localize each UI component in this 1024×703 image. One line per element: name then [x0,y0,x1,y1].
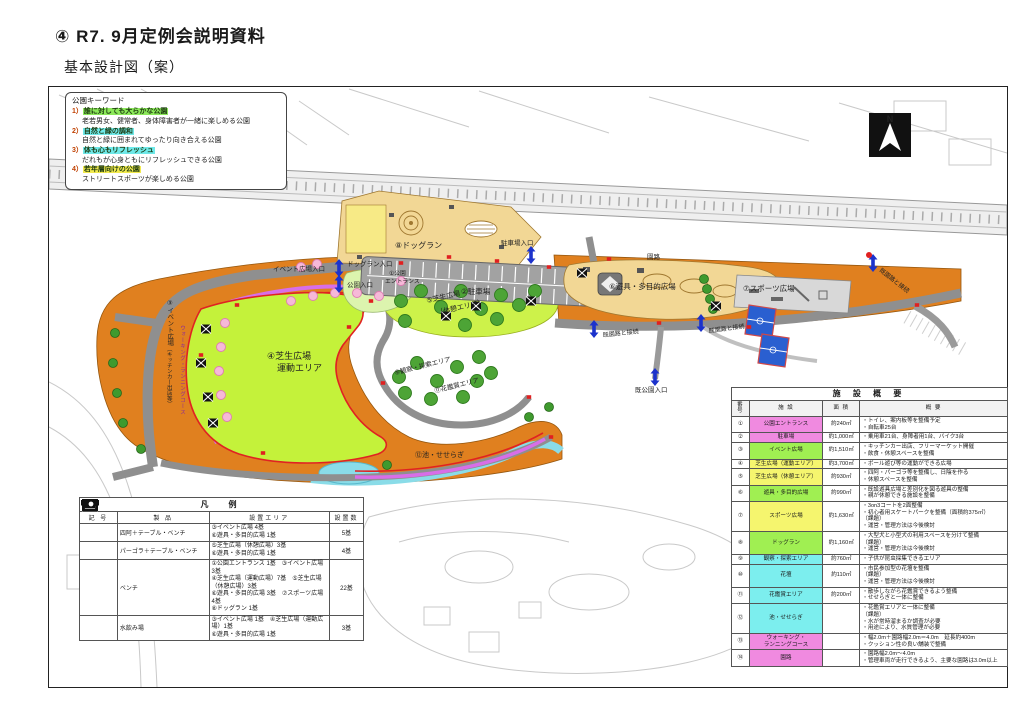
facility-row: ⑪花鑑賞エリア約200㎡・散歩しながら花鑑賞できるよう整備 ・せせらぎと一体に整… [732,587,1008,603]
facility-row: ⑨観察・探索エリア約760㎡・子供が昆虫採集できるエリア [732,554,1008,564]
facility-row: ④芝生広場（運動エリア）約3,700㎡・ボール遊び等の運動ができる広場 [732,459,1008,469]
facility-row: ⑭園路・園路幅2.0m～4.0m ・管理車両が走行できるよう、主要な園路は3.0… [732,650,1008,666]
label-dogrun: ⑧ドッグラン [395,240,442,250]
label-existing-park-entrance: 既公園入口 [635,386,668,394]
facility-row: ⑬ウォーキング・ ランニングコース・幅2.0m＋園路幅2.0m＝4.0m 延長約… [732,633,1008,649]
legend-row: 水飲み場 ③イベント広場 1基 ④芝生広場（運動広場）1基 ⑥遊具・多目的広場 … [80,615,364,641]
facility-row: ⑦スポーツ広場約1,630㎡・3on3コートを2面整備 ・初心者用スケートパーク… [732,502,1008,532]
label-dogrun-entrance: ドッグラン入口 [347,259,393,268]
label-lawn-sport-2: 運動エリア [277,363,322,373]
facility-row: ⑥遊具・多目的広場約990㎡・既設遊具広場と差別化を図る遊具の整備 ・親が休憩で… [732,485,1008,501]
page-title: ④ R7. 9月定例会説明資料 [55,22,266,47]
label-path: 園路 [647,252,661,261]
legend-row: 四阿＋テーブル・ベンチ ③イベント広場 4基 ⑥遊具・多目的広場 1基 5基 [80,524,364,542]
label-observe: ⑨観察・探索エリア [393,354,452,377]
facility-row: ①公園エントランス約240㎡・トイレ、案内板等を整備予定 ・自転車25台 [732,417,1008,433]
fountain-icon [80,498,100,510]
label-parking: ②駐車場 [461,286,491,296]
label-pond: ⑫池・せせらぎ [415,450,464,459]
label-parking-entrance: 駐車場入口 [501,238,534,247]
legend-row: パーゴラ＋テーブル・ベンチ ⑤芝生広場（休憩広場）3基 ⑥遊具・多目的広場 1基… [80,542,364,560]
label-lawn-sport-1: ④芝生広場 [267,350,311,361]
keywords-title: 公園キーワード [72,96,280,106]
label-playground: ⑥遊具・多目的広場 [609,281,676,291]
site-plan-map: N ⑧ドッグラン ドッグラン入口 公園入口 イベント広場入口 駐車場入口 ②駐車… [48,86,1008,688]
label-walking-course: ウォーキング・ランニングコース [178,325,186,435]
label-park-entrance-small: 公園入口 [347,281,373,289]
legend-row: ベンチ ①公園エントランス 1基 ③イベント広場 3基 ④芝生広場（運動広場）7… [80,560,364,616]
label-event-entrance: イベント広場入口 [273,264,325,273]
facility-row: ⑩花壇約110㎡・市民参加型の花壇を整備 （課題） ・運営・管理方法は今後検討 [732,564,1008,587]
label-entrance-1a: ①公園 [389,270,406,277]
north-arrow-icon: N [869,113,911,157]
svg-text:N: N [887,114,894,124]
facilities-title: 施 設 概 要 [732,388,1008,401]
facility-row: ⑫池・せせらぎ・花鑑賞エリアと一体に整備 （課題） ・水が常時溜まるか調査が必要… [732,604,1008,634]
label-entrance-1b: エントランス [385,278,420,285]
facility-row: ⑤芝生広場（休憩エリア）約930㎡・四阿・パーゴラ等を整備し、日陰を作る ・休憩… [732,469,1008,485]
park-keywords-box: 公園キーワード 1）誰に対しても大らかな公園 老若男女、健常者、身体障害者が一緒… [65,92,287,190]
legend-table: 凡 例 記 号製 品 設置エリア設置数 四阿＋テーブル・ベンチ ③イベント広場 … [79,497,364,641]
facilities-table: 施 設 概 要 番 号施 設 面 積概 要 ①公園エントランス約240㎡・トイレ… [731,387,1008,667]
page-subtitle: 基本設計図（案） [64,57,184,77]
label-event-plaza: ③イベント広場（キッチンカー出店等） [165,299,173,429]
legend-title: 凡 例 [80,498,364,512]
facility-row: ②駐車場約1,000㎡・乗用車21台、身障者用1台、バイク3台 [732,433,1008,443]
facility-row: ⑧ドッグラン約1,160㎡・大型犬と小型犬の利用スペースを分けて整備 （課題） … [732,531,1008,554]
facility-row: ③イベント広場約1,510㎡・キッチンカー出店、フリーマーケット開催 ・飲食・休… [732,443,1008,459]
label-sports: ⑦スポーツ広場 [743,283,795,293]
